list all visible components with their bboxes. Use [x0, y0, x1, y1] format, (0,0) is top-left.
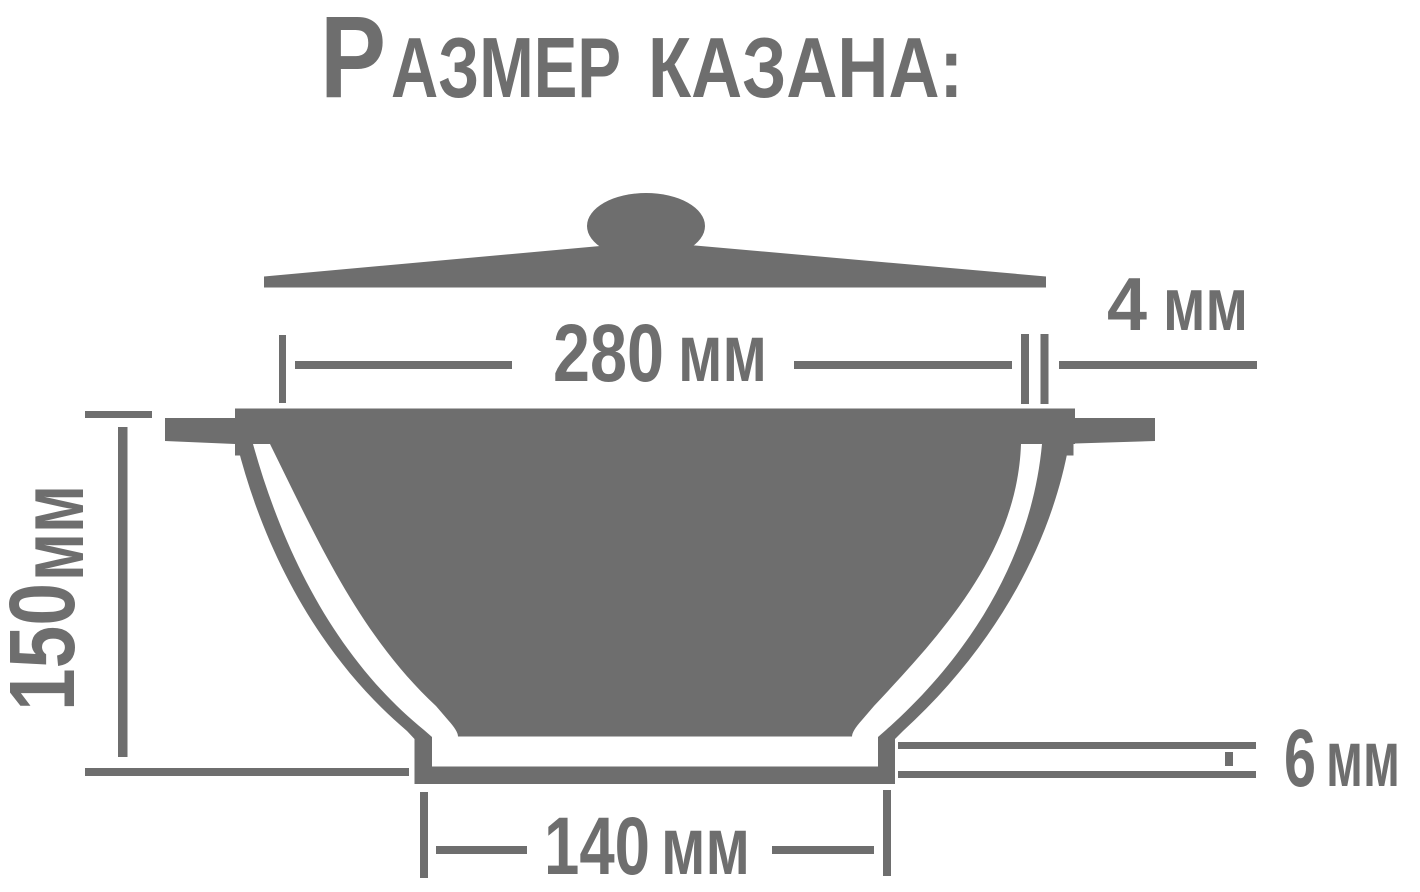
svg-text:4: 4 — [1107, 262, 1147, 346]
svg-text:6: 6 — [1284, 713, 1316, 804]
svg-text:КАЗАНА:: КАЗАНА: — [648, 21, 963, 116]
svg-text:мм: мм — [661, 801, 750, 892]
svg-text:мм: мм — [1326, 714, 1400, 803]
svg-text:280: 280 — [553, 308, 664, 399]
svg-text:мм: мм — [1163, 262, 1248, 346]
svg-text:150: 150 — [0, 583, 94, 711]
svg-text:мм: мм — [678, 308, 767, 399]
svg-text:Р: Р — [320, 0, 386, 122]
svg-text:АЗМЕР: АЗМЕР — [391, 21, 621, 116]
svg-text:мм: мм — [3, 485, 103, 581]
svg-text:140: 140 — [544, 801, 650, 892]
